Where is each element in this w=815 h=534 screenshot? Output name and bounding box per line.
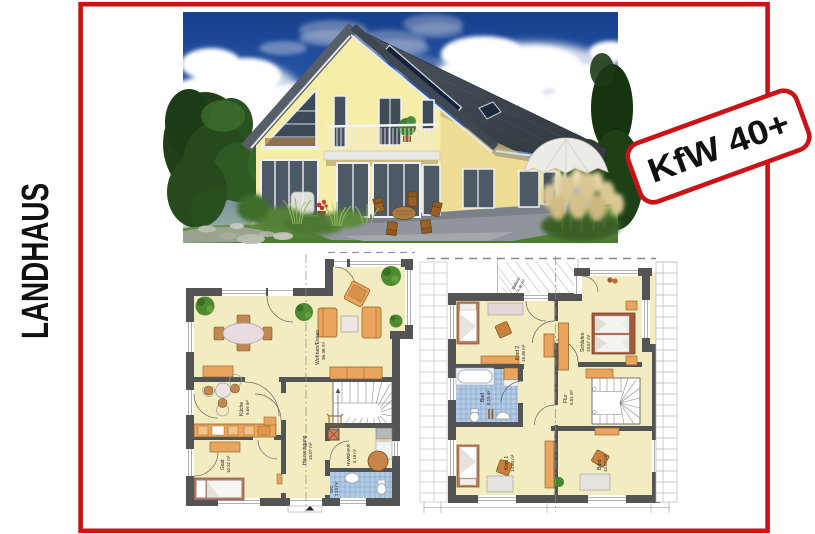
svg-text:10.32 m²: 10.32 m² bbox=[226, 455, 231, 473]
svg-text:15.38 m²: 15.38 m² bbox=[521, 344, 526, 362]
svg-text:2.15 m²: 2.15 m² bbox=[334, 481, 339, 496]
svg-text:8.19 m²: 8.19 m² bbox=[486, 390, 491, 405]
svg-text:6.53 m²: 6.53 m² bbox=[569, 390, 574, 405]
svg-text:36.36 m²: 36.36 m² bbox=[321, 341, 326, 360]
svg-text:5.18 m²: 5.18 m² bbox=[352, 448, 357, 463]
svg-text:15.07 m²: 15.07 m² bbox=[308, 442, 313, 460]
svg-text:HWR/HAR: HWR/HAR bbox=[346, 443, 351, 466]
svg-text:LANDHAUS: LANDHAUS bbox=[15, 183, 57, 339]
svg-text:14.64 m²: 14.64 m² bbox=[510, 454, 515, 472]
svg-text:9.69 m²: 9.69 m² bbox=[245, 400, 250, 415]
svg-text:12.87 m²: 12.87 m² bbox=[603, 454, 608, 472]
svg-text:19.67 m²: 19.67 m² bbox=[586, 334, 591, 352]
